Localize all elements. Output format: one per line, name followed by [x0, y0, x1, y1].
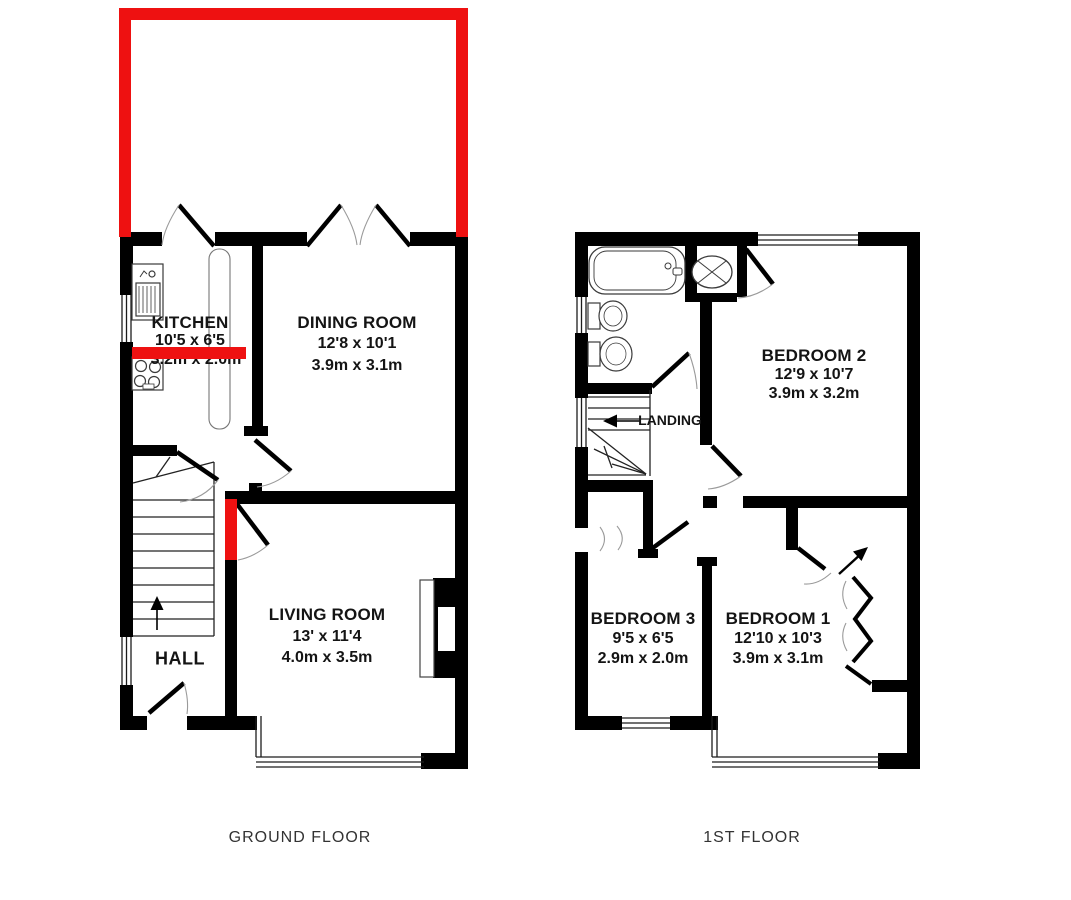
pedestal-basin-icon — [588, 337, 632, 371]
bedroom1-metric-size: 3.9m x 3.1m — [733, 650, 824, 668]
hearth — [420, 580, 434, 677]
bedroom3-imperial-size: 9'5 x 6'5 — [613, 630, 674, 648]
bedroom2-label: BEDROOM 2 — [762, 346, 867, 366]
wardrobe-doors — [839, 547, 871, 684]
bedroom3-label: BEDROOM 3 — [591, 609, 696, 629]
washbasin-icon — [692, 256, 732, 288]
kitchen-imperial-size: 10'5 x 6'5 — [155, 332, 225, 350]
living-room-imperial-size: 13' x 11'4 — [292, 628, 361, 646]
kitchen-label: KITCHEN — [152, 313, 229, 333]
hall-label: HALL — [155, 649, 205, 670]
first-floor-plan — [575, 232, 920, 769]
kitchen-sink-icon — [132, 264, 163, 320]
bathtub-icon — [589, 247, 685, 294]
bedroom1-imperial-size: 12'10 x 10'3 — [734, 630, 822, 648]
toilet-icon — [588, 301, 627, 331]
bedroom2-imperial-size: 12'9 x 10'7 — [775, 366, 854, 384]
landing-label: LANDING — [638, 412, 702, 428]
ground-floor-title: GROUND FLOOR — [229, 829, 372, 847]
ground-floor-plan — [120, 205, 468, 769]
staircase-first — [588, 390, 650, 476]
landing-arrow-icon — [603, 415, 640, 428]
kitchen-metric-size: 3.2m x 2.0m — [151, 351, 242, 369]
bedroom1-label: BEDROOM 1 — [726, 609, 831, 629]
living-room-label: LIVING ROOM — [269, 605, 385, 625]
dining-room-imperial-size: 12'8 x 10'1 — [318, 335, 397, 353]
dining-room-metric-size: 3.9m x 3.1m — [312, 357, 403, 375]
staircase-ground — [133, 457, 214, 636]
dining-room-label: DINING ROOM — [297, 313, 416, 333]
ground-floor-doors — [149, 205, 410, 713]
living-room-metric-size: 4.0m x 3.5m — [282, 649, 373, 667]
bedroom3-metric-size: 2.9m x 2.0m — [598, 650, 689, 668]
floorplan-drawing — [0, 0, 1071, 900]
stairs-up-arrow-icon — [151, 596, 164, 630]
first-floor-title: 1ST FLOOR — [703, 829, 801, 847]
bedroom2-metric-size: 3.9m x 3.2m — [769, 385, 860, 403]
floorplan-page: KITCHEN 10'5 x 6'5 3.2m x 2.0m DINING RO… — [0, 0, 1071, 900]
fireplace-recess — [438, 607, 455, 651]
